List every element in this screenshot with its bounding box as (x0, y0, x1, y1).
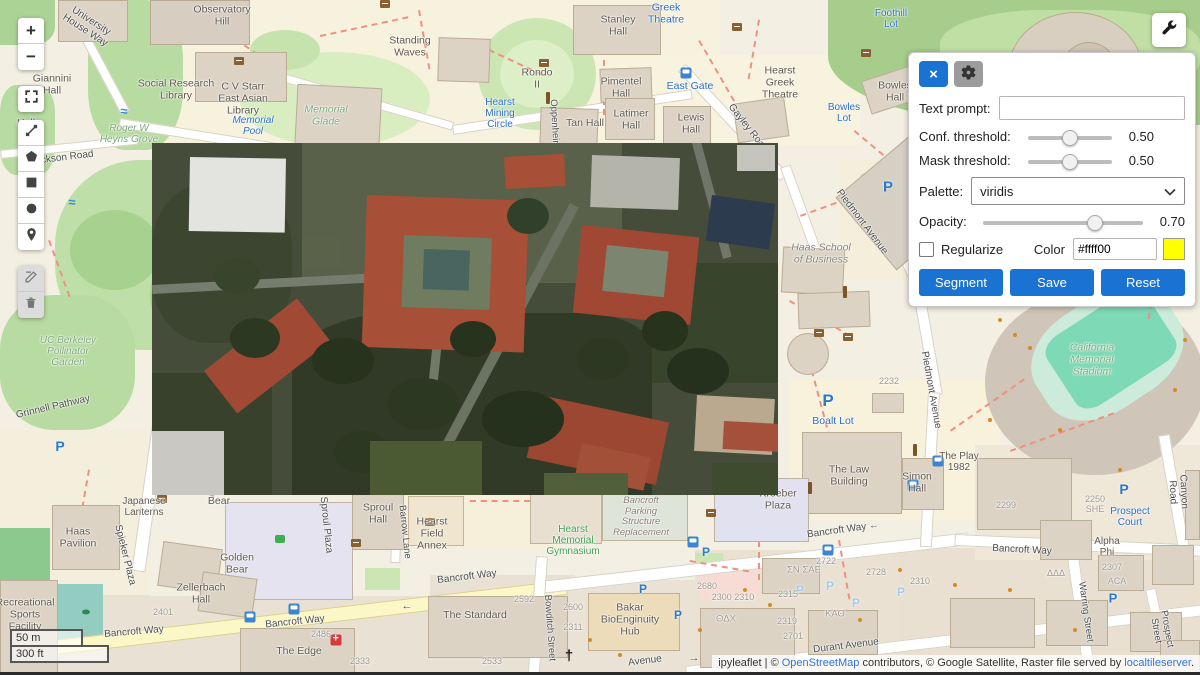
map-dot-icon (898, 568, 902, 572)
map-label: 2300 2310 (712, 592, 755, 602)
mask-threshold-slider[interactable] (1028, 154, 1112, 168)
fullscreen-icon (24, 89, 39, 109)
chevron-down-icon (1164, 184, 1176, 199)
map-label: Haas School of Business (791, 242, 851, 266)
map-label: 2401 (153, 607, 173, 617)
map-label: Memorial Glade (304, 104, 347, 128)
map-dot-icon (953, 583, 957, 587)
map-label: ΔΔΔ (1047, 568, 1065, 578)
edit-pencil-icon (24, 269, 38, 289)
conf-threshold-slider[interactable] (1028, 130, 1112, 144)
map-label: Lewis Hall (678, 112, 705, 136)
map-label: Memorial Pool (232, 115, 273, 137)
text-prompt-label: Text prompt: (919, 101, 991, 116)
map-label: Bancroft Parking Structure Replacement (613, 496, 669, 539)
map-label: Hearst Field Annex (417, 516, 448, 551)
map-dot-icon (618, 653, 622, 657)
palette-select[interactable]: viridis (971, 177, 1185, 205)
attribution-suffix: . (1191, 657, 1194, 669)
scale-control: 50 m 300 ft (10, 629, 109, 663)
map-label: Tan Hall (566, 118, 604, 130)
opacity-label: Opacity: (919, 214, 977, 229)
map-label: Rondo II (522, 67, 553, 91)
scale-imperial: 300 ft (10, 645, 109, 663)
map-dot-icon (1073, 628, 1077, 632)
satellite-feature (370, 441, 482, 495)
satellite-feature (152, 431, 224, 495)
map-label: 2250 SHE (1085, 494, 1105, 514)
map-label: Zellerbach Hall (176, 582, 225, 606)
satellite-feature (590, 155, 680, 210)
map-dot-icon (698, 628, 702, 632)
map-parking-icon: P (883, 179, 893, 196)
satellite-feature (667, 348, 729, 394)
satellite-feature (507, 198, 549, 234)
text-prompt-input[interactable] (999, 96, 1185, 120)
satellite-feature (302, 238, 342, 268)
map-poi-icon (814, 329, 824, 337)
save-button[interactable]: Save (1010, 269, 1094, 296)
map-parking-icon: P (1109, 591, 1118, 606)
map-label: 2333 (350, 656, 370, 666)
map-tot-icon (913, 444, 917, 456)
map-label: Foothill Lot (875, 8, 907, 30)
map-label: Prospect Court (1110, 506, 1149, 528)
map-dot-icon (588, 638, 592, 642)
satellite-feature (423, 249, 470, 291)
satellite-feature (450, 321, 496, 357)
satellite-feature (482, 391, 564, 447)
map-label: 2315 (778, 589, 798, 599)
map-label: ΚΑΘ (825, 610, 845, 621)
map-parking-icon: P (55, 438, 64, 454)
map-bus-icon (688, 537, 699, 548)
map-label: Boalt Lot (812, 416, 853, 428)
map-label: Pimentel Hall (601, 76, 642, 100)
scale-metric: 50 m (10, 629, 83, 645)
satellite-feature (706, 195, 776, 249)
conf-threshold-value: 0.50 (1118, 129, 1154, 144)
map-label: ΘΔΧ (716, 615, 736, 626)
map-label: Bowles Hall (878, 80, 912, 104)
satellite-feature (214, 258, 260, 294)
map-dot-icon (1028, 346, 1032, 350)
map-label: Stanley Hall (600, 14, 635, 38)
map-green-area (70, 210, 160, 290)
satellite-feature (230, 318, 280, 358)
map-label: UC Berkeley Pollinator Garden (40, 335, 96, 369)
map-label: Hearst Greek Theatre (762, 65, 798, 100)
map-building (437, 37, 491, 83)
map-poi-icon (843, 333, 853, 341)
map-tot-icon (808, 482, 812, 494)
map-label: Roger W Heyns Grove (100, 123, 158, 145)
map-label: 2307 (1102, 562, 1122, 572)
zoom-in-button[interactable]: + (18, 18, 44, 44)
map-label: 2311 (563, 622, 582, 632)
map-label: Simon Hall (902, 471, 932, 495)
map-bus-icon (289, 604, 300, 615)
toolbar-toggle-button[interactable] (1152, 13, 1186, 47)
osm-link[interactable]: OpenStreetMap (782, 657, 860, 669)
circle-icon (24, 201, 39, 221)
map-label: Bowles Lot (828, 102, 860, 124)
map-label: 2533 (482, 656, 502, 666)
map-label: 2319 (777, 616, 797, 626)
map-label: 2600 (563, 602, 583, 612)
satellite-feature (737, 145, 775, 171)
localtileserver-link[interactable]: localtileserver (1124, 657, 1191, 669)
mask-threshold-label: Mask threshold: (919, 153, 1022, 168)
map-label: Bakar BioEnginuity Hub (601, 602, 659, 637)
map-dot-icon (1008, 588, 1012, 592)
map-cross-icon (331, 635, 342, 646)
map-label: 2680 (697, 581, 717, 591)
map-label: The Law Building (829, 464, 869, 488)
map-building (797, 291, 870, 329)
edit-toolbar (18, 266, 44, 318)
map-label: Canyon Road (1166, 474, 1190, 510)
settings-button[interactable] (954, 61, 983, 87)
map-building (872, 393, 904, 413)
satellite-feature (602, 245, 668, 297)
color-label: Color (1034, 242, 1065, 257)
zoom-out-button[interactable]: − (18, 44, 44, 70)
map-label: 2701 (783, 631, 803, 641)
map-dot-icon (1058, 428, 1062, 432)
map-label: 2299 (996, 500, 1016, 510)
gear-icon (960, 64, 977, 84)
map-parking-icon: P (822, 391, 833, 411)
map-dot-icon (998, 318, 1002, 322)
map-dot-icon (858, 618, 862, 622)
map-church-icon: † (565, 648, 573, 665)
map-label: Social Research Library (138, 78, 214, 102)
map-label: Greek Theatre (648, 2, 684, 26)
map-label: 2592 (514, 594, 534, 604)
map-dot-icon (1013, 333, 1017, 337)
map-poi-icon (706, 509, 716, 517)
map-bus-icon (823, 545, 834, 556)
map-label: Hearst Memorial Gymnasium (546, 524, 599, 558)
fullscreen-control (18, 86, 44, 112)
marker-pin-icon (24, 227, 39, 247)
map-label: → (689, 652, 700, 664)
draw-circle-button[interactable] (18, 198, 44, 224)
map-dot-icon (988, 418, 992, 422)
map-label: The Play 1982 (939, 451, 978, 473)
satellite-feature (189, 157, 286, 233)
map-label: East Gate (667, 81, 714, 93)
map-label: Haas Pavilion (60, 526, 97, 550)
wrench-icon (1160, 19, 1178, 42)
map-label: ACA (1108, 576, 1127, 586)
map-dot-icon (1183, 338, 1187, 342)
map-label: Golden Bear (220, 552, 254, 576)
map-label: California Memorial Stadium (1070, 342, 1114, 377)
map-label: ← (402, 600, 413, 612)
map-parking-icon: P (702, 545, 710, 559)
attribution-prefix: ipyleaflet | © (718, 657, 782, 669)
map-poi-icon (380, 0, 390, 8)
map-label: Observatory Hill (193, 4, 250, 28)
draw-polygon-button[interactable] (18, 146, 44, 172)
map-parking-icon: P (826, 579, 834, 593)
fullscreen-button[interactable] (18, 86, 44, 112)
map-label: 2310 (910, 576, 930, 586)
map-parking-icon: P (852, 596, 860, 610)
map-dot-icon (1173, 388, 1177, 392)
color-swatch[interactable] (1163, 238, 1185, 260)
satellite-feature (712, 463, 778, 495)
palette-label: Palette: (919, 184, 963, 199)
segment-button[interactable]: Segment (919, 269, 1003, 296)
satellite-feature (544, 473, 628, 495)
regularize-label: Regularize (941, 242, 1003, 257)
map-bus-icon (681, 68, 692, 79)
map-label: 2232 (879, 376, 899, 386)
segmentation-control-panel: × Text prompt: Conf. threshold: 0.50 Mas… (908, 52, 1196, 307)
map-label: Recreational Sports Facility (0, 597, 54, 632)
map-poi-icon (732, 23, 742, 31)
map-poi-icon (234, 57, 244, 65)
rectangle-icon (24, 175, 39, 195)
map-label: Bear (208, 496, 230, 508)
map-label: ΣΝ ΣΑΕ (787, 566, 821, 577)
map-label: 2728 (866, 567, 886, 577)
draw-marker-button[interactable] (18, 224, 44, 250)
satellite-feature (387, 378, 459, 430)
satellite-feature (723, 421, 778, 452)
map-wave-icon: ≈ (120, 104, 127, 119)
satellite-feature (642, 311, 688, 351)
map-building (1152, 545, 1194, 585)
polyline-icon (24, 123, 39, 143)
map-label: Japanese Lanterns (122, 496, 165, 518)
map-building (787, 333, 829, 375)
opacity-value: 0.70 (1149, 214, 1185, 229)
edit-layers-button[interactable] (18, 266, 44, 292)
attribution-bar: ipyleaflet | © OpenStreetMap contributor… (712, 655, 1200, 672)
map-parking-icon: P (639, 582, 647, 596)
map-label: Bancroft Way ← (806, 519, 879, 540)
map-building (1046, 600, 1108, 646)
map-poi-icon (861, 49, 871, 57)
map-parking-icon: P (897, 585, 905, 599)
map-label: Standing Waves (389, 35, 430, 59)
map-green-area (365, 568, 400, 590)
map-bus-icon (245, 612, 256, 623)
map-label: Sproul Hall (363, 502, 393, 526)
map-label: The Edge (276, 646, 322, 658)
map-dot-icon (768, 603, 772, 607)
map-label: C V Starr East Asian Library (218, 81, 268, 116)
attribution-middle: contributors, © Google Satellite, Raster… (859, 657, 1124, 669)
regularize-checkbox[interactable] (919, 242, 934, 257)
map-tot-icon (843, 286, 847, 298)
color-input[interactable] (1073, 238, 1157, 260)
draw-polyline-button[interactable] (18, 120, 44, 146)
map-label: The Standard (443, 610, 507, 622)
map-label: Hearst Mining Circle (485, 97, 514, 131)
map-alien-icon (275, 535, 285, 543)
map-footpath (470, 500, 530, 502)
map-label: Latimer Hall (613, 108, 648, 132)
palette-selected-value: viridis (980, 184, 1013, 199)
polygon-icon (24, 149, 39, 169)
draw-rectangle-button[interactable] (18, 172, 44, 198)
satellite-feature (577, 338, 629, 380)
reset-button[interactable]: Reset (1101, 269, 1185, 296)
leaflet-map-app: PPPPPPPPPPPPP†≈≈University House WayObse… (0, 0, 1200, 675)
conf-threshold-label: Conf. threshold: (919, 129, 1022, 144)
map-label: 2486 (311, 629, 331, 639)
map-parking-icon: P (1119, 481, 1128, 497)
draw-toolbar (18, 120, 44, 250)
map-parking-icon: P (674, 608, 682, 622)
map-building (950, 598, 1035, 648)
zoom-control: + − (18, 18, 44, 70)
map-dot-icon (1118, 468, 1122, 472)
trash-icon (24, 295, 38, 315)
opacity-slider[interactable] (983, 215, 1143, 229)
mask-threshold-value: 0.50 (1118, 153, 1154, 168)
map-wave-icon: ≈ (68, 195, 75, 210)
satellite-feature (312, 338, 374, 384)
map-poi-icon (351, 539, 361, 547)
close-panel-button[interactable]: × (919, 61, 948, 87)
delete-layers-button[interactable] (18, 292, 44, 318)
satellite-feature (504, 154, 566, 189)
satellite-overlay-image (152, 143, 778, 495)
map-swim-icon (82, 610, 90, 615)
map-label: Alpha Phi (1094, 536, 1120, 558)
